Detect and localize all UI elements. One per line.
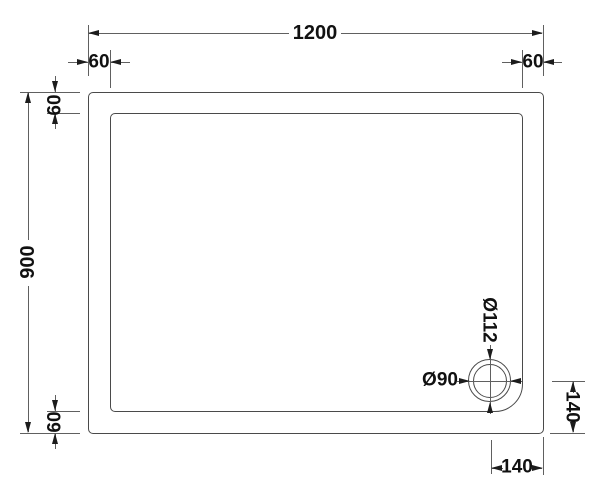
dim-label-overall-height: 900 [18, 245, 38, 278]
arrowhead-icon [532, 30, 543, 36]
dim-label-rim-top-left: 60 [88, 53, 109, 72]
dimension-line [341, 33, 542, 34]
dim-label-drain-from-right: 140 [501, 458, 533, 477]
arrowhead-icon [459, 378, 470, 384]
arrowhead-icon [487, 402, 493, 413]
arrowhead-icon [77, 59, 88, 65]
extension-line [20, 433, 80, 434]
dimension-line [28, 93, 29, 240]
arrowhead-icon [52, 433, 58, 444]
drawing-canvas: 1200 60 60 900 60 60 Ø112 Ø90 140 [0, 0, 600, 500]
extension-line [110, 50, 111, 88]
arrowhead-icon [510, 378, 521, 384]
tray-inner-outline [110, 113, 523, 412]
arrowhead-icon [487, 349, 493, 360]
arrowhead-icon [532, 465, 543, 471]
dim-label-drain-inner-dia: Ø90 [422, 371, 458, 390]
arrowhead-icon [570, 422, 576, 433]
arrowhead-icon [25, 92, 31, 103]
dim-label-drain-outer-dia: Ø112 [480, 297, 499, 342]
arrowhead-icon [88, 30, 99, 36]
arrowhead-icon [543, 59, 554, 65]
dim-label-overall-width: 1200 [293, 23, 338, 43]
extension-line [552, 381, 585, 382]
extension-line [550, 433, 585, 434]
dimension-line [28, 286, 29, 432]
extension-line [543, 437, 544, 475]
arrowhead-icon [52, 81, 58, 92]
dim-label-rim-left-bottom: 60 [46, 411, 65, 432]
dim-label-drain-from-bottom: 140 [563, 391, 582, 423]
dimension-line [89, 33, 289, 34]
arrowhead-icon [25, 422, 31, 433]
dim-label-rim-left-top: 60 [46, 94, 65, 115]
arrowhead-icon [110, 59, 121, 65]
arrowhead-icon [52, 400, 58, 411]
dim-label-rim-top-right: 60 [522, 53, 543, 72]
arrowhead-icon [511, 59, 522, 65]
